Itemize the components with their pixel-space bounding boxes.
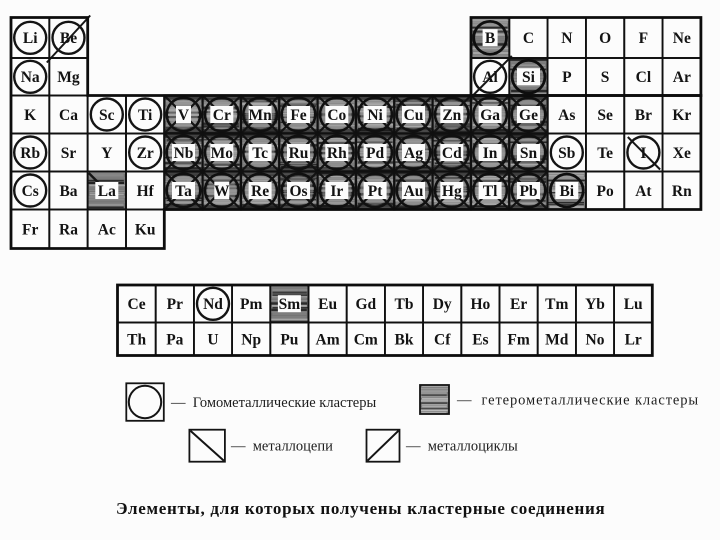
svg-text:S: S <box>601 69 610 86</box>
svg-text:No: No <box>586 331 605 348</box>
svg-text:Xe: Xe <box>673 145 691 162</box>
svg-text:Pa: Pa <box>166 331 183 348</box>
svg-text:Rn: Rn <box>672 183 692 200</box>
svg-text:Mg: Mg <box>57 69 80 86</box>
svg-text:Th: Th <box>127 331 146 348</box>
svg-text:Элементы, для которых получены: Элементы, для которых получены кластерны… <box>116 499 605 518</box>
svg-text:In: In <box>483 145 498 162</box>
svg-text:Ag: Ag <box>404 145 423 162</box>
svg-text:B: B <box>485 30 495 47</box>
svg-text:Ne: Ne <box>673 30 691 47</box>
svg-text:Pu: Pu <box>280 331 298 348</box>
svg-text:Sn: Sn <box>520 145 538 162</box>
svg-text:Ba: Ba <box>59 183 77 200</box>
svg-text:Re: Re <box>251 183 269 200</box>
svg-text:Mo: Mo <box>211 145 234 162</box>
svg-text:Ar: Ar <box>673 69 691 86</box>
svg-text:K: K <box>24 107 36 124</box>
svg-text:Cs: Cs <box>22 183 39 200</box>
svg-text:Es: Es <box>472 331 488 348</box>
svg-text:Ir: Ir <box>330 183 343 200</box>
svg-text:Ga: Ga <box>480 107 500 124</box>
svg-text:Yb: Yb <box>585 296 605 313</box>
svg-text:Eu: Eu <box>318 296 337 313</box>
svg-text:Ho: Ho <box>470 296 490 313</box>
svg-text:Os: Os <box>289 183 307 200</box>
svg-text:Tm: Tm <box>545 296 568 313</box>
svg-text:Pm: Pm <box>240 296 262 313</box>
svg-text:Po: Po <box>596 183 613 200</box>
svg-text:Cr: Cr <box>213 107 231 124</box>
svg-text:Sc: Sc <box>99 107 115 124</box>
svg-text:Nd: Nd <box>203 296 223 313</box>
svg-text:Kr: Kr <box>672 107 691 124</box>
svg-text:Ru: Ru <box>289 145 309 162</box>
svg-text:Ni: Ni <box>367 107 383 124</box>
svg-text:Md: Md <box>545 331 569 348</box>
svg-text:Ti: Ti <box>138 107 153 124</box>
svg-text:Cd: Cd <box>442 145 462 162</box>
svg-text:Br: Br <box>635 107 652 124</box>
svg-text:Bk: Bk <box>395 331 414 348</box>
svg-text:Pt: Pt <box>368 183 383 200</box>
svg-text:Al: Al <box>482 69 498 86</box>
svg-text:Sb: Sb <box>558 145 575 162</box>
svg-text:Pb: Pb <box>519 183 537 200</box>
svg-text:Er: Er <box>510 296 527 313</box>
svg-text:Be: Be <box>60 30 77 47</box>
svg-text:Rb: Rb <box>20 145 40 162</box>
svg-text:U: U <box>207 331 218 348</box>
svg-text:— Гомометаллические кластеры: — Гомометаллические кластеры <box>170 395 376 411</box>
svg-text:At: At <box>635 183 652 200</box>
svg-text:W: W <box>214 183 230 200</box>
svg-text:Ce: Ce <box>128 296 146 313</box>
svg-text:Mn: Mn <box>248 107 272 124</box>
svg-text:Tc: Tc <box>252 145 268 162</box>
svg-text:Tl: Tl <box>483 183 498 200</box>
svg-text:Nb: Nb <box>174 145 194 162</box>
svg-text:Ta: Ta <box>175 183 192 200</box>
svg-text:Zn: Zn <box>442 107 461 124</box>
svg-text:Tb: Tb <box>395 296 414 313</box>
svg-text:C: C <box>523 30 534 47</box>
svg-text:Cl: Cl <box>636 69 652 86</box>
svg-text:Co: Co <box>327 107 346 124</box>
svg-text:La: La <box>98 183 116 200</box>
svg-text:Cu: Cu <box>404 107 424 124</box>
svg-text:P: P <box>562 69 572 86</box>
svg-text:Sr: Sr <box>61 145 77 162</box>
svg-text:Hg: Hg <box>442 183 462 200</box>
svg-text:Gd: Gd <box>355 296 376 313</box>
svg-text:Zr: Zr <box>137 145 154 162</box>
svg-text:Np: Np <box>241 331 261 348</box>
svg-text:F: F <box>639 30 648 47</box>
svg-text:Cf: Cf <box>434 331 451 348</box>
svg-text:Na: Na <box>21 69 40 86</box>
svg-text:Se: Se <box>597 107 613 124</box>
svg-text:Ac: Ac <box>98 221 116 238</box>
svg-text:Fm: Fm <box>507 331 529 348</box>
svg-text:Ku: Ku <box>135 221 156 238</box>
svg-text:— гетерометаллические класте: — гетерометаллические кластеры <box>456 393 699 409</box>
svg-text:Am: Am <box>316 331 340 348</box>
svg-text:Bi: Bi <box>559 183 574 200</box>
svg-text:Ca: Ca <box>59 107 78 124</box>
svg-text:Hf: Hf <box>137 183 155 200</box>
svg-text:— металлоцепи: — металлоцепи <box>230 439 333 455</box>
svg-text:Lr: Lr <box>625 331 642 348</box>
svg-text:Fr: Fr <box>22 221 38 238</box>
svg-text:Rh: Rh <box>327 145 347 162</box>
svg-text:Si: Si <box>522 69 536 86</box>
svg-text:Fe: Fe <box>290 107 306 124</box>
svg-text:Ra: Ra <box>59 221 78 238</box>
svg-text:Dy: Dy <box>433 296 452 313</box>
svg-text:Li: Li <box>23 30 38 47</box>
svg-text:Sm: Sm <box>279 296 301 313</box>
svg-text:Cm: Cm <box>354 331 378 348</box>
svg-text:Lu: Lu <box>624 296 643 313</box>
svg-text:As: As <box>558 107 575 124</box>
svg-text:Pr: Pr <box>167 296 183 313</box>
svg-text:Au: Au <box>404 183 424 200</box>
svg-text:— металлоциклы: — металлоциклы <box>405 439 518 455</box>
svg-text:Te: Te <box>597 145 613 162</box>
svg-text:I: I <box>640 145 646 162</box>
svg-text:O: O <box>599 30 611 47</box>
svg-text:Ge: Ge <box>519 107 538 124</box>
svg-text:N: N <box>561 30 572 47</box>
svg-text:V: V <box>178 107 190 124</box>
svg-text:Y: Y <box>101 145 112 162</box>
svg-text:Pd: Pd <box>366 145 384 162</box>
